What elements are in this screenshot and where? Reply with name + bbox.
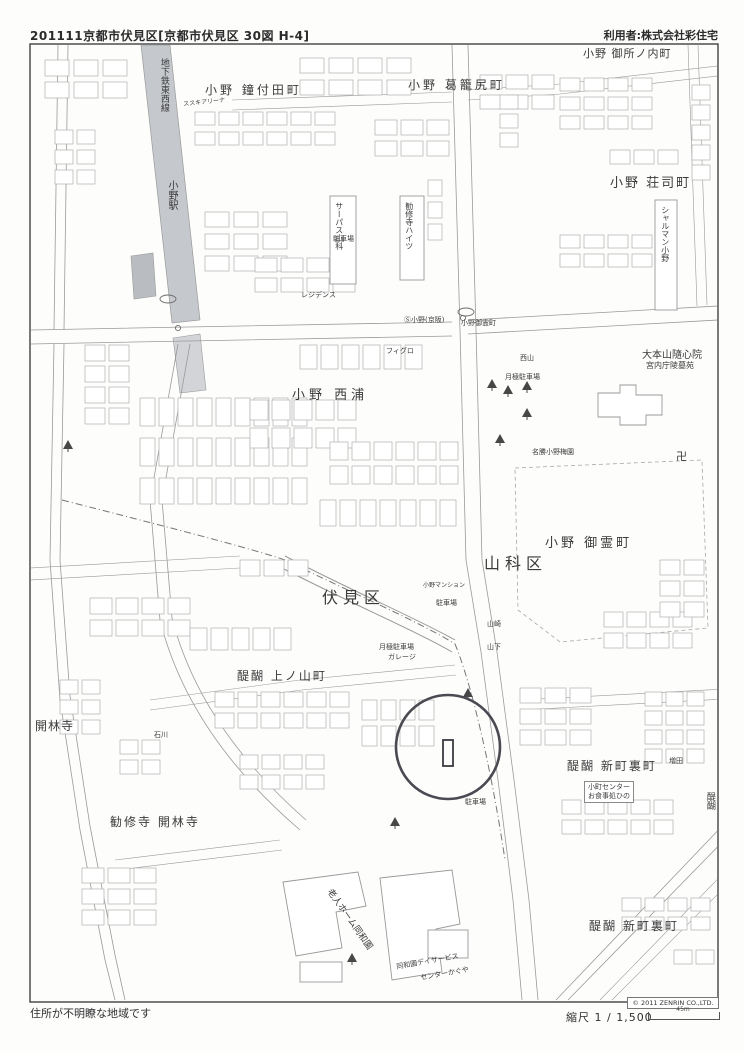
trees-layer: [63, 379, 532, 965]
zuishinin-building: [598, 385, 662, 425]
signal-icon: [175, 325, 180, 330]
large-buildings: [283, 196, 677, 982]
scale-bar: [648, 1012, 720, 1020]
signals-layer: [160, 295, 474, 331]
douwaen-building-b: [380, 870, 460, 980]
tree-icon: [522, 381, 532, 390]
tree-icon: [495, 434, 505, 443]
zenrin-map-page: { "header": { "left": "201111京都市伏見区[京都市伏…: [0, 0, 744, 1053]
scale-label: 縮尺 1 / 1,500: [566, 1009, 653, 1025]
surpass-yamashina-building: [330, 196, 356, 284]
kanshuji-heights-building: [400, 196, 424, 280]
douwaen-building-d: [428, 930, 468, 958]
map-canvas: [0, 0, 744, 1053]
douwaen-building-c: [300, 962, 342, 982]
tree-icon: [487, 379, 497, 388]
tree-icon: [503, 385, 513, 394]
tree-icon: [463, 688, 473, 697]
tree-icon: [522, 408, 532, 417]
tree-icon: [390, 817, 400, 826]
tree-icon: [347, 953, 357, 962]
target-building: [443, 740, 453, 766]
douwaen-building-a: [283, 872, 366, 956]
ward-boundary: [62, 500, 505, 860]
charmant-ono-building: [655, 200, 677, 310]
building-blocks: [45, 58, 714, 964]
unclear-address-note: 住所が不明瞭な地域です: [30, 1005, 151, 1021]
tree-icon: [63, 440, 73, 449]
route-badge-icon: [458, 308, 474, 316]
